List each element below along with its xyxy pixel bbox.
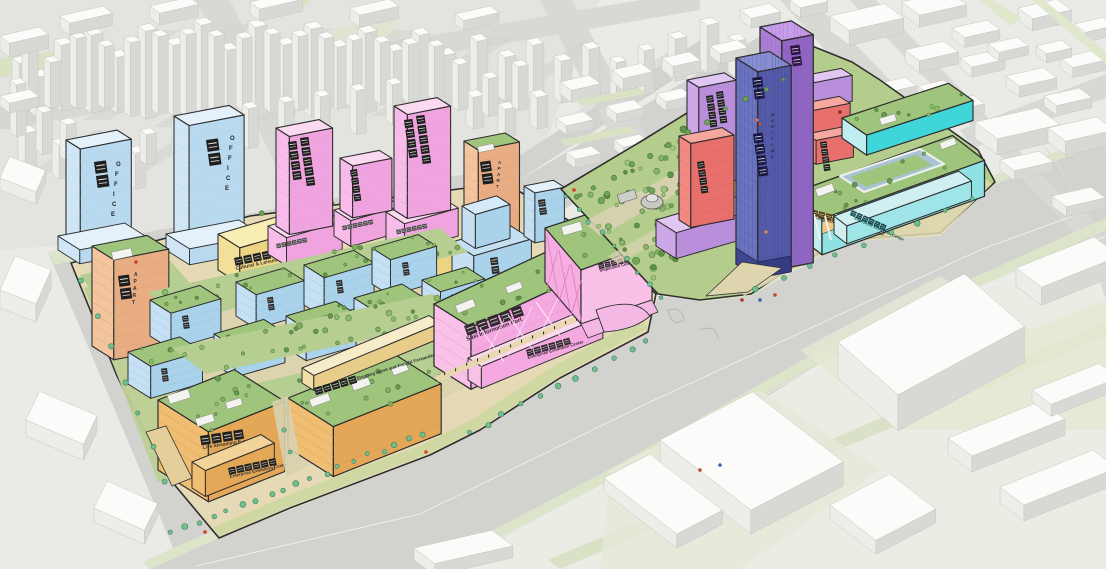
svg-text:E: E: [225, 186, 229, 192]
svg-text:C: C: [226, 176, 231, 182]
svg-text:F: F: [228, 156, 232, 162]
svg-text:T: T: [496, 184, 499, 189]
svg-text:T: T: [132, 300, 135, 306]
svg-text:F: F: [115, 172, 119, 178]
svg-text:F: F: [114, 182, 118, 188]
svg-text:P: P: [498, 166, 501, 171]
svg-text:A: A: [133, 286, 137, 292]
svg-text:C: C: [112, 202, 117, 208]
svg-text:O: O: [230, 136, 235, 142]
svg-text:O: O: [116, 162, 121, 168]
svg-text:F: F: [229, 146, 233, 152]
svg-text:A: A: [134, 272, 138, 278]
svg-text:R: R: [133, 293, 137, 299]
svg-text:E: E: [111, 212, 115, 218]
